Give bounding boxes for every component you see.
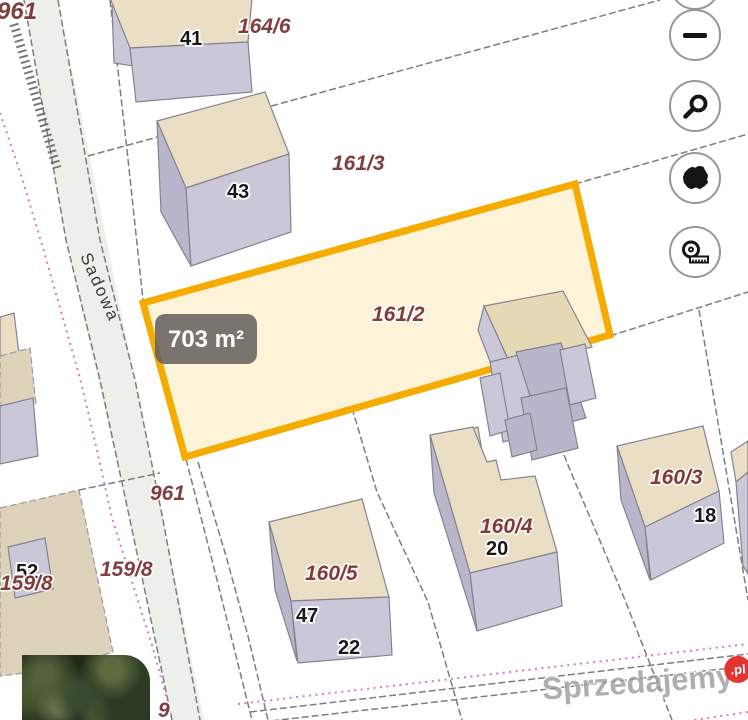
parcel-label-161-3: 161/3 [332, 152, 385, 175]
parcel-label-160-3: 160/3 [650, 466, 703, 489]
parcel-label-partial-9: 9 [158, 699, 170, 720]
building-41 [110, 0, 252, 102]
parcel-label-160-4: 160/4 [480, 515, 533, 538]
satellite-layer-thumbnail[interactable] [22, 655, 150, 720]
parcel-label-164-6: 164/6 [238, 15, 291, 38]
house-number-20: 20 [486, 538, 508, 560]
house-number-41: 41 [180, 28, 202, 50]
parcel-label-159-8-b: 159/8 [100, 558, 153, 581]
parcel-label-161-2: 161/2 [372, 303, 425, 326]
area-badge-text: 703 m² [168, 326, 244, 353]
house-number-47: 47 [296, 605, 318, 627]
parcel-label-961-top: 961 [0, 0, 37, 25]
zoom-out-button[interactable] [669, 9, 721, 61]
building-18 [617, 426, 724, 580]
house-number-22: 22 [338, 637, 360, 659]
house-number-18: 18 [694, 505, 716, 527]
building-43 [157, 92, 291, 266]
measure-button[interactable] [669, 226, 721, 278]
parcel-label-159-8-a: 159/8 [0, 572, 53, 595]
area-badge: 703 m² [155, 314, 257, 364]
map-viewport[interactable]: 961 164/6 161/3 161/2 961 52 159/8 159/8… [0, 0, 748, 720]
magnifier-icon [682, 93, 709, 120]
right-edge-building [731, 441, 748, 574]
search-button[interactable] [669, 80, 721, 132]
poland-extent-button[interactable] [669, 152, 721, 204]
cadastral-map[interactable]: 961 164/6 161/3 161/2 961 52 159/8 159/8… [0, 0, 748, 720]
house-number-43: 43 [227, 181, 249, 203]
minus-icon [683, 33, 707, 38]
measuring-tape-icon [680, 239, 710, 265]
parcel-label-961-mid: 961 [150, 482, 185, 505]
poland-map-icon [680, 164, 710, 192]
parcel-label-160-5: 160/5 [305, 562, 358, 585]
left-edge-buildings [0, 313, 38, 464]
